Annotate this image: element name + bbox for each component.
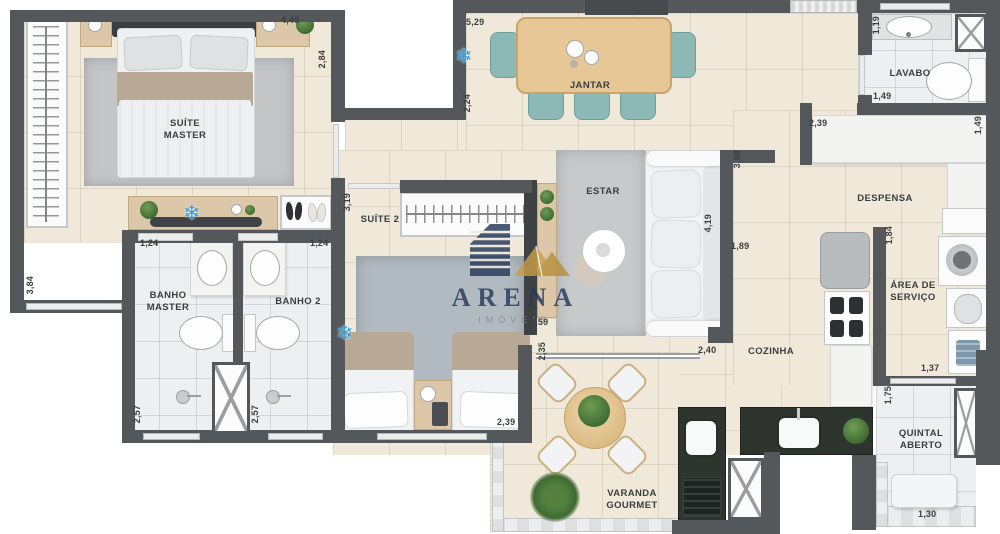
- room-label-suite2: SUÍTE 2: [350, 214, 410, 226]
- dim-label: 3,19: [342, 193, 352, 211]
- door-suite-master: [333, 124, 339, 178]
- varanda-paver-border-left: [492, 440, 504, 532]
- room-label-suite-master: SUÍTE MASTER: [147, 118, 223, 143]
- laundry-cabinet: [942, 208, 988, 234]
- burner-2: [849, 297, 863, 314]
- grill: [683, 477, 721, 517]
- kitchen-sink: [777, 416, 821, 450]
- dim-label: 2,39: [809, 118, 827, 128]
- arena-logo-icon: [438, 212, 586, 280]
- room-label-estar: ESTAR: [578, 186, 628, 198]
- door-suite2: [348, 183, 400, 189]
- burner-1: [830, 297, 844, 314]
- shower-arm-2: [277, 395, 291, 397]
- despensa-shelf-top: [812, 115, 988, 163]
- wall: [400, 180, 532, 193]
- varanda-sink: [684, 419, 718, 457]
- dim-label: 3,88: [732, 150, 742, 168]
- dim-label: 5,29: [466, 17, 484, 27]
- room-label-despensa: DESPENSA: [852, 193, 918, 205]
- wall-beam: [585, 0, 668, 15]
- banho2-toilet-tank: [244, 314, 256, 352]
- kitchen-plant: [843, 418, 869, 444]
- shaft-quintal: [954, 388, 978, 458]
- dim-label: 1,89: [731, 241, 749, 251]
- dim-label: 4,19: [703, 214, 713, 232]
- varanda-plant: [530, 472, 580, 522]
- room-label-banho2: BANHO 2: [270, 296, 326, 308]
- room-label-jantar: JANTAR: [558, 80, 622, 92]
- wall: [331, 10, 345, 122]
- washer-drum: [946, 244, 978, 276]
- window-servico: [890, 378, 956, 384]
- shaft-lavabo: [955, 14, 987, 52]
- wall: [858, 13, 872, 55]
- patio-centerpiece-plant: [578, 395, 610, 427]
- ac-snowflake-icon: ❄: [455, 46, 473, 67]
- master-pillow-left: [123, 35, 183, 72]
- dim-label: 2,84: [317, 50, 327, 68]
- dresser-tray: [150, 217, 262, 227]
- table-plate-1: [566, 40, 584, 58]
- dim-label: 1,24: [310, 238, 328, 248]
- shower-head-2: [266, 390, 280, 404]
- dim-label: 2,57: [132, 405, 142, 423]
- wall: [233, 237, 243, 365]
- dim-label: 2,39: [497, 417, 515, 427]
- banho-master-toilet-bowl: [179, 316, 223, 350]
- burner-4: [849, 320, 863, 337]
- floor-plan: ❄ ❄ ❄ ARENA IMÓVEIS SUÍTE MASTER JANTAR …: [0, 0, 1000, 534]
- window-banho-master: [143, 433, 200, 440]
- dim-label: 1,24: [140, 238, 158, 248]
- watermark-logo: ARENA IMÓVEIS: [438, 212, 586, 325]
- watermark-tagline: IMÓVEIS: [438, 315, 586, 325]
- wall: [857, 0, 872, 13]
- fridge: [820, 232, 870, 289]
- sofa-cushion-1: [650, 169, 702, 219]
- wall: [720, 150, 775, 163]
- room-label-banho-master: BANHO MASTER: [138, 290, 198, 315]
- quintal-paver-border-left: [876, 462, 888, 527]
- lavabo-faucet: [906, 32, 911, 37]
- banho2-toilet-bowl: [256, 316, 300, 350]
- plant-dresser: [140, 201, 158, 219]
- dim-label: 1,49: [873, 91, 891, 101]
- dim-label: 2,59: [530, 317, 548, 327]
- wall: [986, 0, 1000, 350]
- dim-label: 1,49: [973, 116, 983, 134]
- dim-label: 2,35: [537, 342, 547, 360]
- shower-arm-1: [187, 395, 201, 397]
- door-lavabo: [859, 55, 865, 95]
- dim-label: 1,84: [884, 226, 894, 244]
- sofa-cushion-2: [650, 219, 702, 269]
- burner-3: [830, 320, 844, 337]
- coffee-table-decor: [596, 243, 610, 257]
- window: [26, 303, 122, 310]
- wall: [518, 345, 532, 442]
- wall: [10, 10, 24, 313]
- decor-ball-green: [245, 205, 255, 215]
- dim-label: 2,40: [698, 345, 716, 355]
- wall: [800, 103, 812, 165]
- tub-basin: [954, 294, 982, 324]
- wall: [672, 520, 780, 534]
- wall: [857, 103, 988, 115]
- suite2-bed1-pillow: [343, 391, 408, 429]
- closet-rail: [45, 26, 47, 222]
- wall: [331, 178, 345, 443]
- room-label-area-servico: ÁREA DE SERVIÇO: [884, 280, 942, 305]
- dim-label: 1,75: [883, 386, 893, 404]
- sofa-cushion-3: [651, 270, 702, 319]
- sliding-door-varanda: [536, 353, 700, 359]
- desk-plant-1: [540, 190, 554, 204]
- shaft-varanda: [728, 458, 764, 520]
- shaft-banhos: [212, 362, 250, 434]
- table-decor: [570, 60, 578, 68]
- quintal-bench: [891, 474, 957, 508]
- window-lavabo: [880, 3, 950, 10]
- door-banho2: [238, 233, 278, 241]
- wall: [852, 455, 876, 530]
- table-plate-2: [584, 50, 599, 65]
- ac-snowflake-icon: ❄: [183, 203, 201, 224]
- room-label-cozinha: COZINHA: [740, 346, 802, 358]
- master-pillow-right: [189, 35, 249, 72]
- wall: [764, 452, 780, 530]
- wall: [708, 327, 733, 343]
- room-label-quintal-aberto: QUINTAL ABERTO: [888, 428, 954, 453]
- entry-door: [790, 0, 857, 13]
- watermark-brand: ARENA: [438, 285, 586, 311]
- dim-label: 2,57: [250, 405, 260, 423]
- shower-head-1: [176, 390, 190, 404]
- kitchen-faucet: [797, 408, 800, 420]
- window-banho2: [268, 433, 323, 440]
- wall: [976, 350, 1000, 465]
- banho2-basin: [250, 250, 280, 286]
- dim-label: 2,24: [462, 94, 472, 112]
- dim-label: 3,84: [25, 276, 35, 294]
- dim-label: 1,30: [918, 509, 936, 519]
- window-suite2: [377, 433, 487, 440]
- dim-label: 4,49: [281, 15, 299, 25]
- banho-master-basin: [197, 250, 227, 286]
- kitchen-cabinet: [830, 345, 872, 407]
- decor-ball-white: [231, 204, 242, 215]
- wall: [331, 108, 466, 120]
- ac-snowflake-icon: ❄: [336, 323, 354, 344]
- room-label-lavabo: LAVABO: [880, 68, 940, 80]
- room-label-varanda-gourmet: VARANDA GOURMET: [598, 488, 666, 513]
- dim-label: 1,19: [871, 16, 881, 34]
- suite2-radio: [432, 402, 448, 426]
- dim-label: 1,37: [921, 363, 939, 373]
- suite2-lamp: [420, 386, 436, 402]
- sofa-armrest-top: [647, 151, 725, 166]
- varanda-paver-border: [492, 518, 680, 532]
